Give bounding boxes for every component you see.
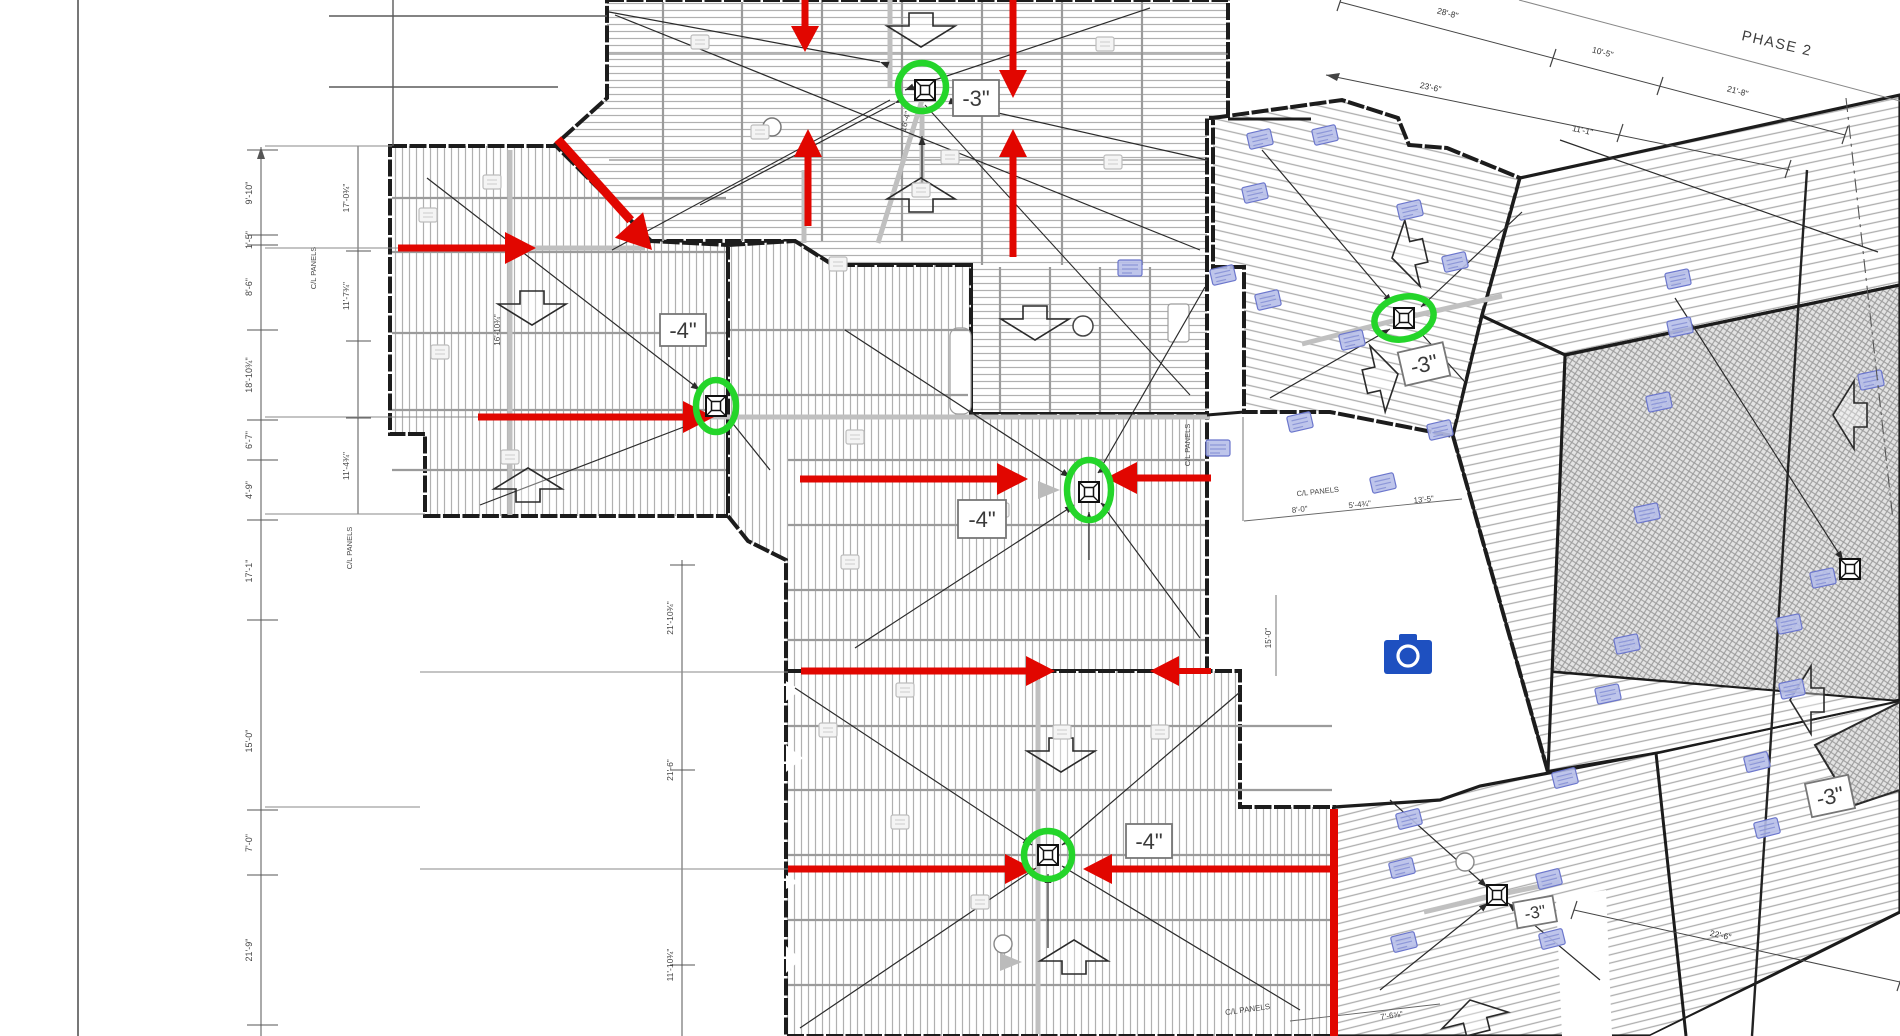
svg-text:C/L PANELS: C/L PANELS [309, 247, 318, 290]
svg-text:16'-10¾": 16'-10¾" [493, 314, 502, 346]
svg-text:C/L PANELS: C/L PANELS [1183, 424, 1192, 467]
svg-text:21'-10¾": 21'-10¾" [665, 601, 675, 634]
svg-text:18'-10¾": 18'-10¾" [244, 357, 254, 392]
svg-text:8'-6": 8'-6" [244, 278, 254, 296]
svg-text:6'-7": 6'-7" [244, 431, 254, 449]
svg-text:11'-7¾": 11'-7¾" [341, 282, 351, 310]
svg-text:21'-9": 21'-9" [244, 939, 254, 962]
svg-text:15'-0": 15'-0" [244, 730, 254, 753]
svg-text:4'-9": 4'-9" [244, 481, 254, 499]
svg-text:8'-0": 8'-0" [1291, 504, 1308, 515]
svg-text:15'-0": 15'-0" [1264, 628, 1273, 649]
svg-text:17'-0¾": 17'-0¾" [341, 184, 351, 213]
svg-text:9'-10": 9'-10" [244, 182, 254, 205]
svg-text:1'-5": 1'-5" [244, 231, 254, 249]
svg-text:11'-10¾": 11'-10¾" [665, 949, 675, 982]
svg-text:17'-1": 17'-1" [244, 560, 254, 583]
svg-text:21'-6": 21'-6" [665, 759, 675, 781]
svg-text:11'-4¾": 11'-4¾" [341, 452, 351, 480]
svg-text:-3": -3" [1523, 901, 1547, 923]
svg-text:7'-0": 7'-0" [244, 834, 254, 852]
svg-text:-4": -4" [968, 507, 995, 532]
svg-text:-3": -3" [962, 86, 989, 111]
svg-text:-4": -4" [1135, 829, 1162, 854]
svg-text:-4": -4" [669, 318, 696, 343]
svg-text:C/L PANELS: C/L PANELS [345, 527, 354, 570]
